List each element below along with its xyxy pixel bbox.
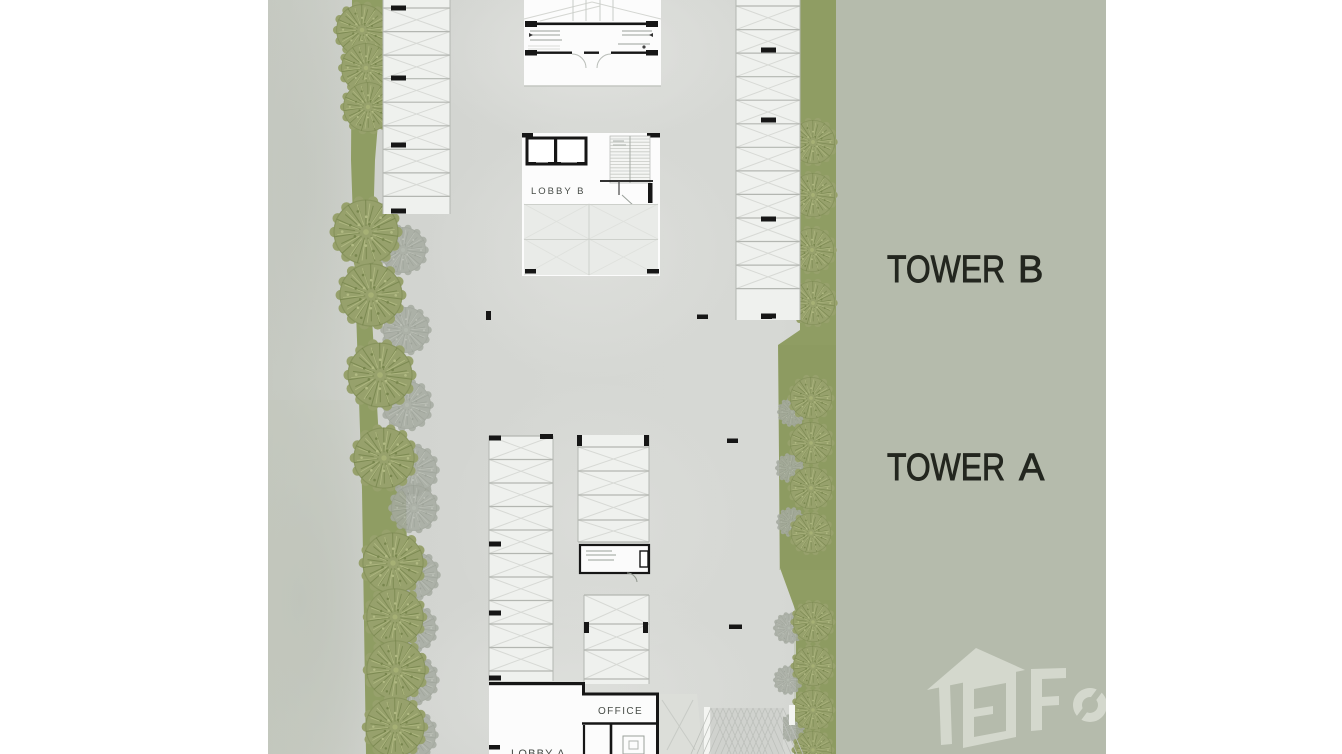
svg-text:LOBBY A: LOBBY A bbox=[511, 748, 566, 754]
svg-text:TOWER: TOWER bbox=[887, 447, 1005, 489]
svg-text:OFFICE: OFFICE bbox=[598, 706, 643, 717]
svg-text:TOWER: TOWER bbox=[887, 249, 1005, 291]
svg-text:LOBBY B: LOBBY B bbox=[531, 186, 586, 197]
svg-text:B: B bbox=[1018, 249, 1043, 291]
svg-text:A: A bbox=[1019, 447, 1045, 489]
